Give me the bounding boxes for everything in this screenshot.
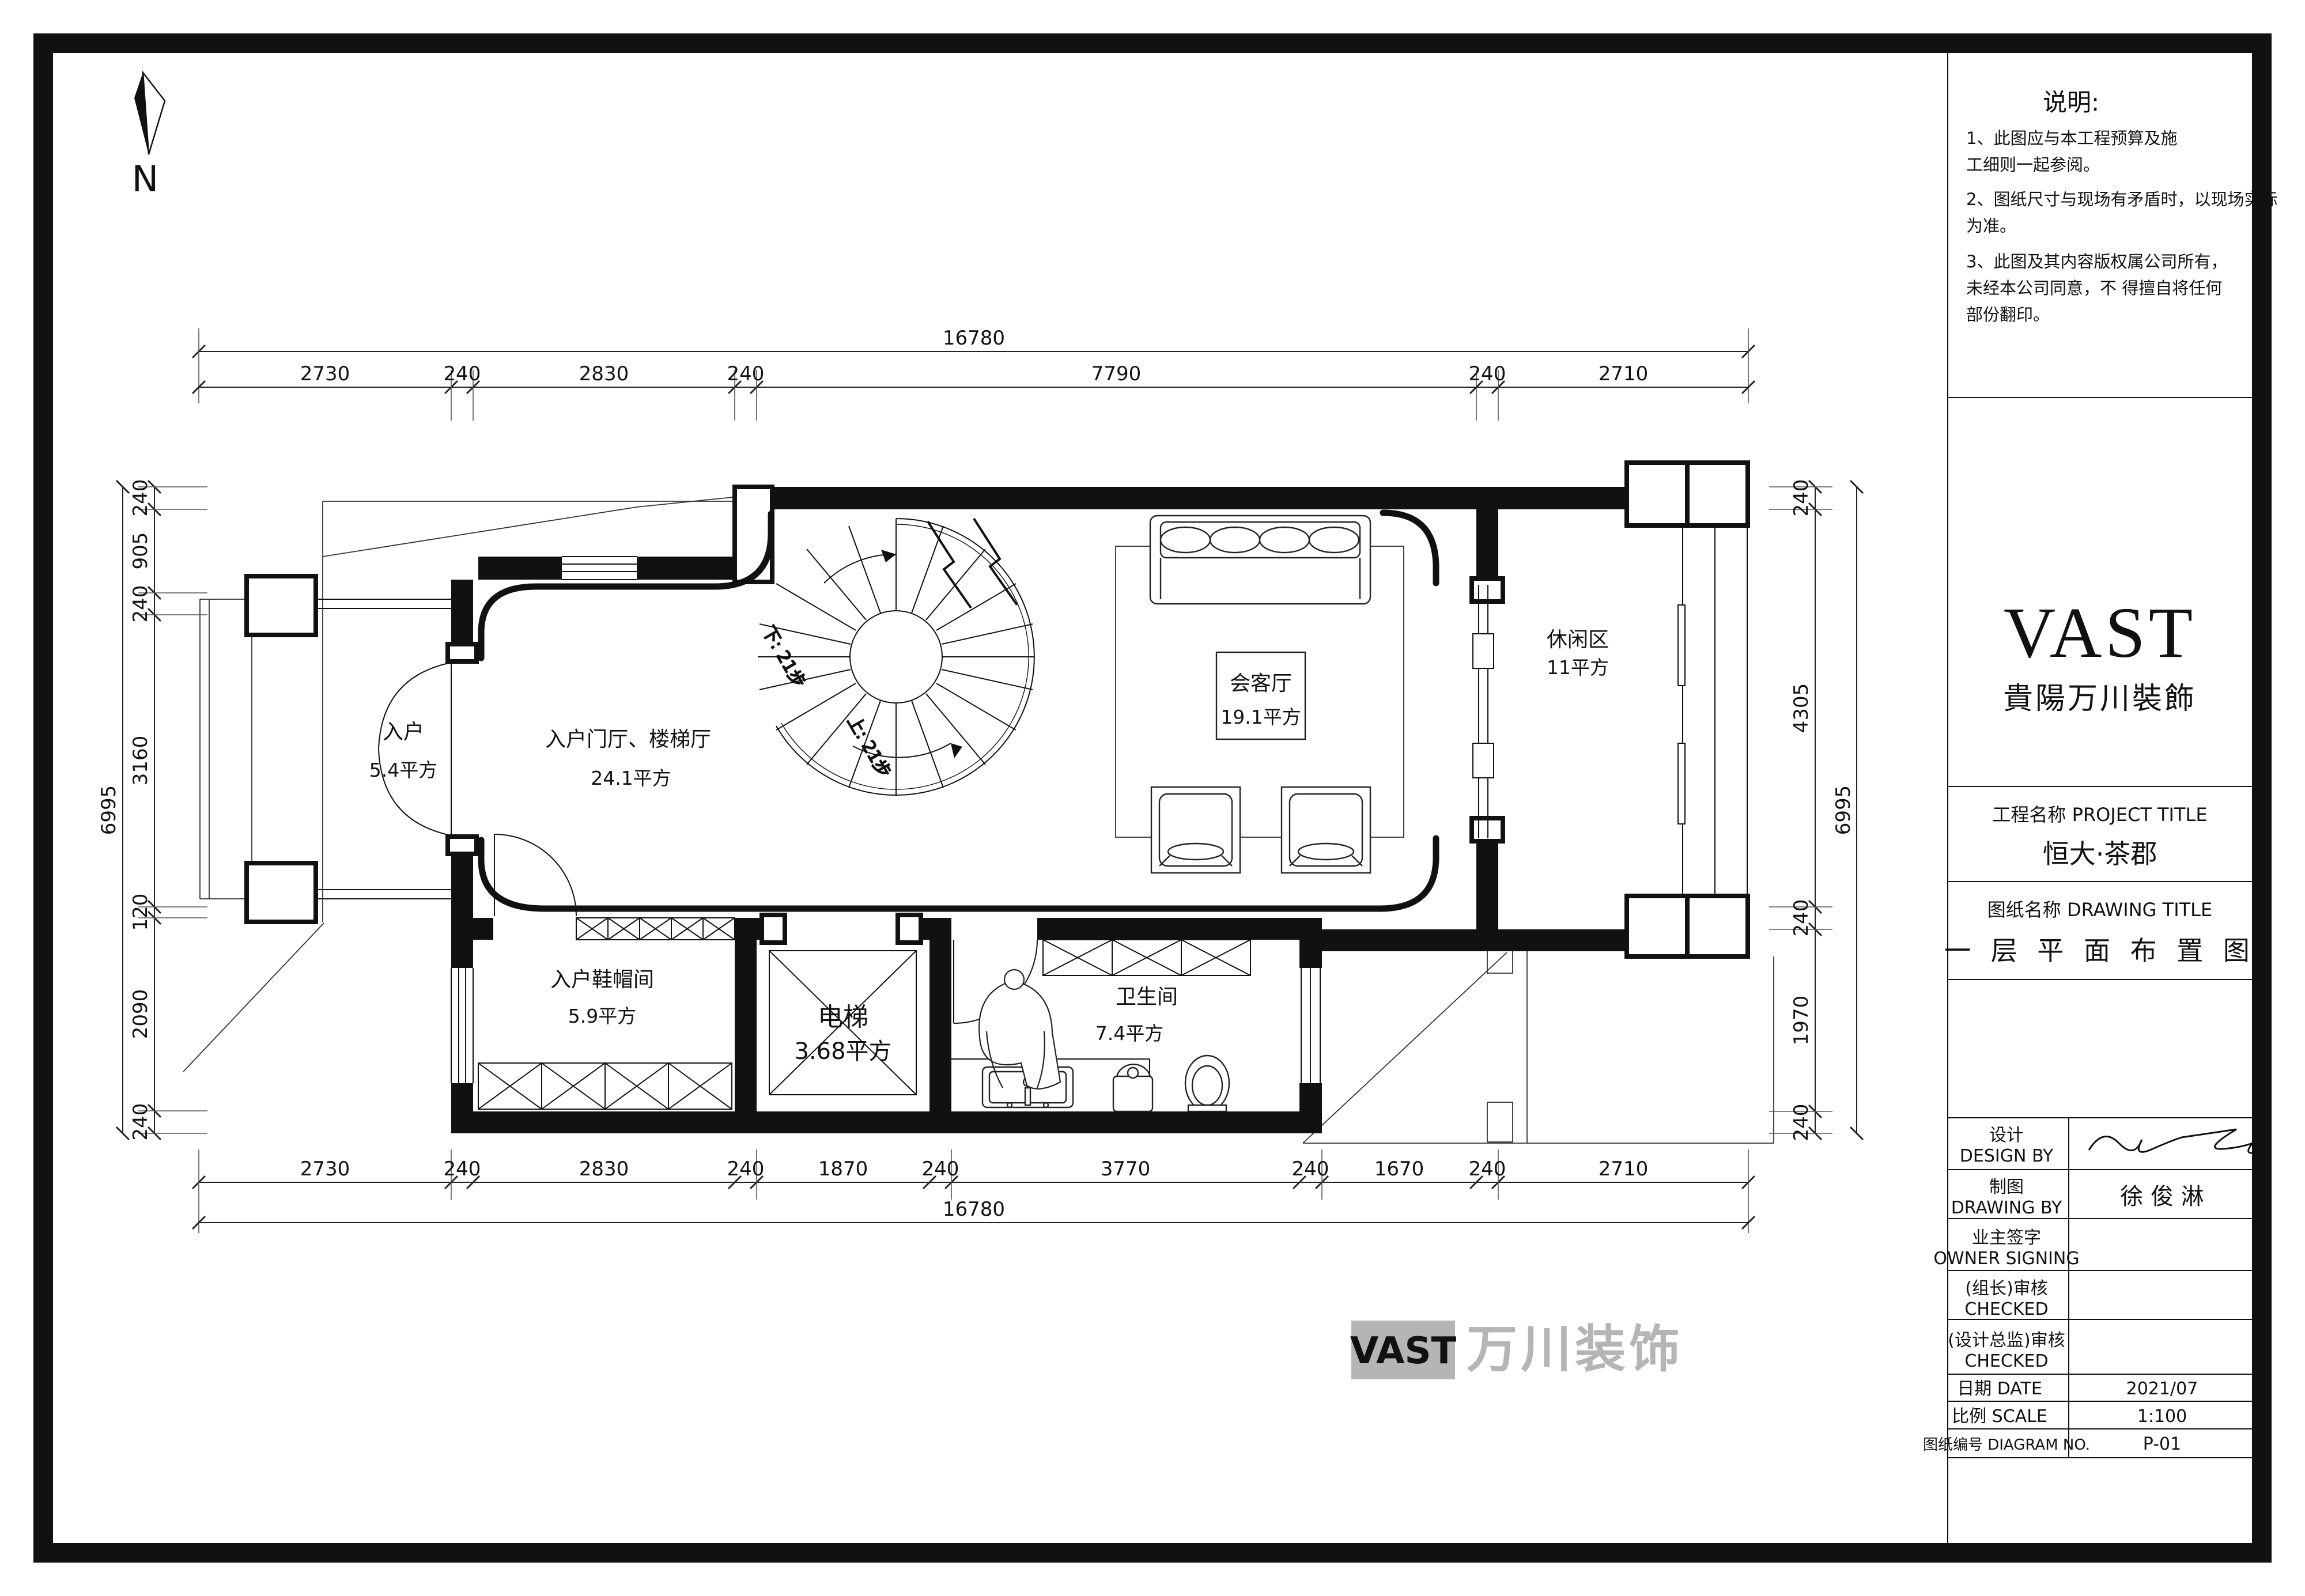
- watermark-brand-text: 万川装饰: [1467, 1319, 1683, 1379]
- dim-bottom-seg: 1670: [1374, 1158, 1424, 1181]
- diagram-no-label: 图纸编号 DIAGRAM NO.: [1923, 1436, 2090, 1454]
- dim-left-total: 6995: [97, 785, 120, 835]
- hall-boundary-upperleft: [481, 514, 771, 658]
- designer-signature: [2089, 1129, 2257, 1153]
- note-line: 为准。: [1966, 216, 2016, 236]
- entry-porch: [200, 576, 451, 922]
- room-foyer-name: 入户门厅、楼梯厅: [545, 728, 711, 751]
- bidet: [1113, 1064, 1152, 1111]
- floor-plan: 下: 21步 上: 21步: [97, 327, 1863, 1233]
- wall-elevator-left: [735, 918, 757, 1111]
- dim-left-seg: 2090: [129, 989, 152, 1039]
- owner-signing-en: OWNER SIGNING: [1933, 1249, 2079, 1269]
- armchair: [1282, 787, 1370, 873]
- elevator-door-jamb: [898, 915, 921, 943]
- wall-rooms-band: [451, 918, 493, 940]
- dim-right-seg: 4305: [1790, 683, 1813, 733]
- room-bath-area: 7.4平方: [1095, 1022, 1163, 1045]
- bath-storage: [1043, 940, 1250, 975]
- north-arrow-icon: N: [132, 73, 165, 200]
- dim-bottom-seg: 1870: [818, 1158, 868, 1181]
- wall-bottom: [451, 1111, 1322, 1133]
- dim-left-seg: 3160: [129, 736, 152, 786]
- dim-bottom-seg: 240: [1469, 1158, 1506, 1181]
- porch-column-top: [247, 576, 316, 635]
- date-label: 日期 DATE: [1957, 1379, 2042, 1399]
- room-leisure-area: 11平方: [1547, 656, 1609, 679]
- dim-right-seg: 240: [1790, 479, 1813, 517]
- project-title-label: 工程名称 PROJECT TITLE: [1992, 804, 2207, 826]
- porch-column-bottom: [247, 863, 316, 922]
- toilet: [1185, 1056, 1229, 1111]
- door-jamb: [448, 644, 477, 661]
- stair-treads: [758, 519, 1034, 795]
- dim-top-seg: 240: [1469, 362, 1506, 385]
- drawing-sheet: 说明: 1、此图应与本工程预算及施 工细则一起参阅。 2、图纸尺寸与现场有矛盾时…: [0, 0, 2305, 1596]
- wall-top: [749, 487, 1627, 509]
- room-leisure-name: 休闲区: [1547, 628, 1609, 652]
- entry-double-door: [379, 663, 451, 835]
- diagram-no-value: P-01: [2143, 1434, 2181, 1454]
- company-name: 貴陽万川裝飾: [2003, 682, 2197, 716]
- room-entry-name: 入户: [383, 720, 424, 744]
- spiral-staircase: 下: 21步 上: 21步: [758, 519, 1034, 795]
- shoe-cabinet: [478, 1063, 732, 1109]
- scale-value: 1:100: [2137, 1406, 2187, 1427]
- dim-top-seg: 240: [727, 362, 765, 385]
- screen-hall-leisure: [1473, 585, 1494, 838]
- dim-bottom-seg: 240: [444, 1158, 481, 1181]
- project-title-value: 恒大·茶郡: [2043, 838, 2157, 869]
- note-line: 工细则一起参阅。: [1966, 155, 2100, 175]
- company-logo-text: VAST: [2004, 593, 2196, 673]
- dim-top-seg: 2730: [300, 362, 350, 385]
- window-topleft: [562, 557, 637, 580]
- dim-right-seg: 240: [1790, 899, 1813, 937]
- stair-up-label: 上: 21步: [843, 712, 894, 781]
- wall-topleft-a: [478, 557, 562, 580]
- owner-signing-zh: 业主签字: [1972, 1228, 2041, 1248]
- dim-top-seg: 240: [444, 362, 481, 385]
- titleblock-table: 设计 DESIGN BY 制图 DRAWING BY 徐 俊 淋 业主签字 OW…: [1923, 1125, 2257, 1454]
- design-by-en: DESIGN BY: [1960, 1146, 2054, 1166]
- wall-elevator-right: [929, 918, 951, 1111]
- title-block: 说明: 1、此图应与本工程预算及施 工细则一起参阅。 2、图纸尺寸与现场有矛盾时…: [1923, 53, 2277, 1543]
- notes-title: 说明:: [2043, 88, 2099, 116]
- dimensions: 16780 2730 240 2830 240 7790 240 2710: [97, 327, 1863, 1233]
- door-jamb: [448, 837, 477, 854]
- column-topleft: [735, 487, 772, 582]
- wall-bath-right-b: [1299, 1083, 1322, 1111]
- column-topright-a: [1627, 463, 1687, 525]
- checked1-en: CHECKED: [1964, 1299, 2048, 1319]
- lattice-screen-shoe: [576, 918, 735, 940]
- room-meeting-name: 会客厅: [1230, 672, 1292, 695]
- dim-top-seg: 7790: [1091, 362, 1142, 385]
- window-bath-right: [1301, 968, 1320, 1083]
- note-line: 3、此图及其内容版权属公司所有，: [1966, 252, 2227, 271]
- room-meeting-area: 19.1平方: [1220, 706, 1301, 728]
- date-value: 2021/07: [2126, 1379, 2198, 1399]
- note-line: 2、图纸尺寸与现场有矛盾时，以现场实际: [1966, 190, 2277, 209]
- dim-left-seg: 120: [129, 894, 152, 931]
- dim-bottom-total: 16780: [943, 1198, 1005, 1221]
- column-bottomright-a: [1627, 896, 1687, 956]
- wall-shoe-left-b: [451, 1083, 473, 1111]
- sofa: [1150, 516, 1370, 604]
- dim-top-seg: 2710: [1599, 362, 1649, 385]
- room-foyer-area: 24.1平方: [591, 767, 671, 789]
- checked1-zh: (组长)审核: [1965, 1279, 2047, 1299]
- dim-right-seg: 1970: [1790, 996, 1813, 1046]
- drawing-by-en: DRAWING BY: [1951, 1198, 2062, 1218]
- dim-right-seg: 240: [1790, 1104, 1813, 1141]
- dim-bottom-seg: 2730: [300, 1158, 350, 1181]
- room-elevator-area: 3.68平方: [794, 1038, 891, 1065]
- dim-left-seg: 240: [129, 585, 152, 623]
- terrace-outline-bottomright: [1303, 937, 1774, 1143]
- note-line: 未经本公司同意，不 得擅自将任何: [1966, 278, 2222, 298]
- room-elevator-name: 电梯: [818, 1003, 868, 1032]
- column-topright-b: [1687, 463, 1748, 525]
- drawing-by-zh: 制图: [1989, 1177, 2024, 1197]
- drawing-title-value: 一 层 平 面 布 置 图: [1944, 935, 2255, 966]
- wall-rooms-band: [1037, 918, 1299, 940]
- watermark: VAST 万川装饰: [1350, 1319, 1683, 1379]
- elevator-door-jamb: [762, 915, 785, 943]
- design-by-zh: 设计: [1989, 1125, 2024, 1145]
- wall-leisure-south: [1322, 929, 1627, 951]
- drawing-by-value: 徐 俊 淋: [2120, 1183, 2204, 1210]
- dim-bottom-seg: 240: [922, 1158, 959, 1181]
- checked2-en: CHECKED: [1964, 1351, 2048, 1371]
- note-line: 部份翻印。: [1966, 305, 2050, 324]
- wall-bath-right-a: [1299, 918, 1322, 968]
- wall-leisure-west-top: [1476, 509, 1498, 583]
- checked2-zh: (设计总监)审核: [1948, 1330, 2065, 1351]
- notes: 说明: 1、此图应与本工程预算及施 工细则一起参阅。 2、图纸尺寸与现场有矛盾时…: [1966, 88, 2277, 324]
- column-bottomright-b: [1687, 896, 1748, 956]
- dim-top-total: 16780: [943, 327, 1005, 350]
- armchair: [1151, 787, 1240, 873]
- drawing-title-label: 图纸名称 DRAWING TITLE: [1987, 899, 2212, 921]
- dim-bottom-seg: 240: [727, 1158, 765, 1181]
- dim-bottom-seg: 3770: [1101, 1158, 1151, 1181]
- dim-bottom-seg: 2830: [579, 1158, 629, 1181]
- dim-top-seg: 2830: [579, 362, 629, 385]
- note-line: 1、此图应与本工程预算及施: [1966, 128, 2177, 148]
- room-entry-area: 5.4平方: [369, 759, 437, 781]
- dim-left-seg: 240: [129, 1103, 152, 1141]
- window-shoe-left: [451, 968, 473, 1083]
- dim-bottom-seg: 240: [1292, 1158, 1329, 1181]
- dim-right-total: 6995: [1832, 785, 1855, 835]
- room-shoe-name: 入户鞋帽间: [550, 968, 654, 992]
- scale-label: 比例 SCALE: [1952, 1406, 2047, 1427]
- watermark-logo-text: VAST: [1350, 1330, 1457, 1372]
- dim-left-seg: 905: [129, 532, 152, 570]
- dim-bottom-seg: 2710: [1599, 1158, 1649, 1181]
- room-shoe-area: 5.9平方: [568, 1005, 636, 1027]
- room-bath-name: 卫生间: [1116, 985, 1178, 1009]
- window-leisure-east: [1678, 525, 1747, 896]
- bathroom-fixtures: [951, 970, 1229, 1111]
- hall-boundary-topright: [1383, 513, 1436, 583]
- north-label: N: [132, 158, 158, 200]
- dim-left-seg: 240: [129, 479, 152, 517]
